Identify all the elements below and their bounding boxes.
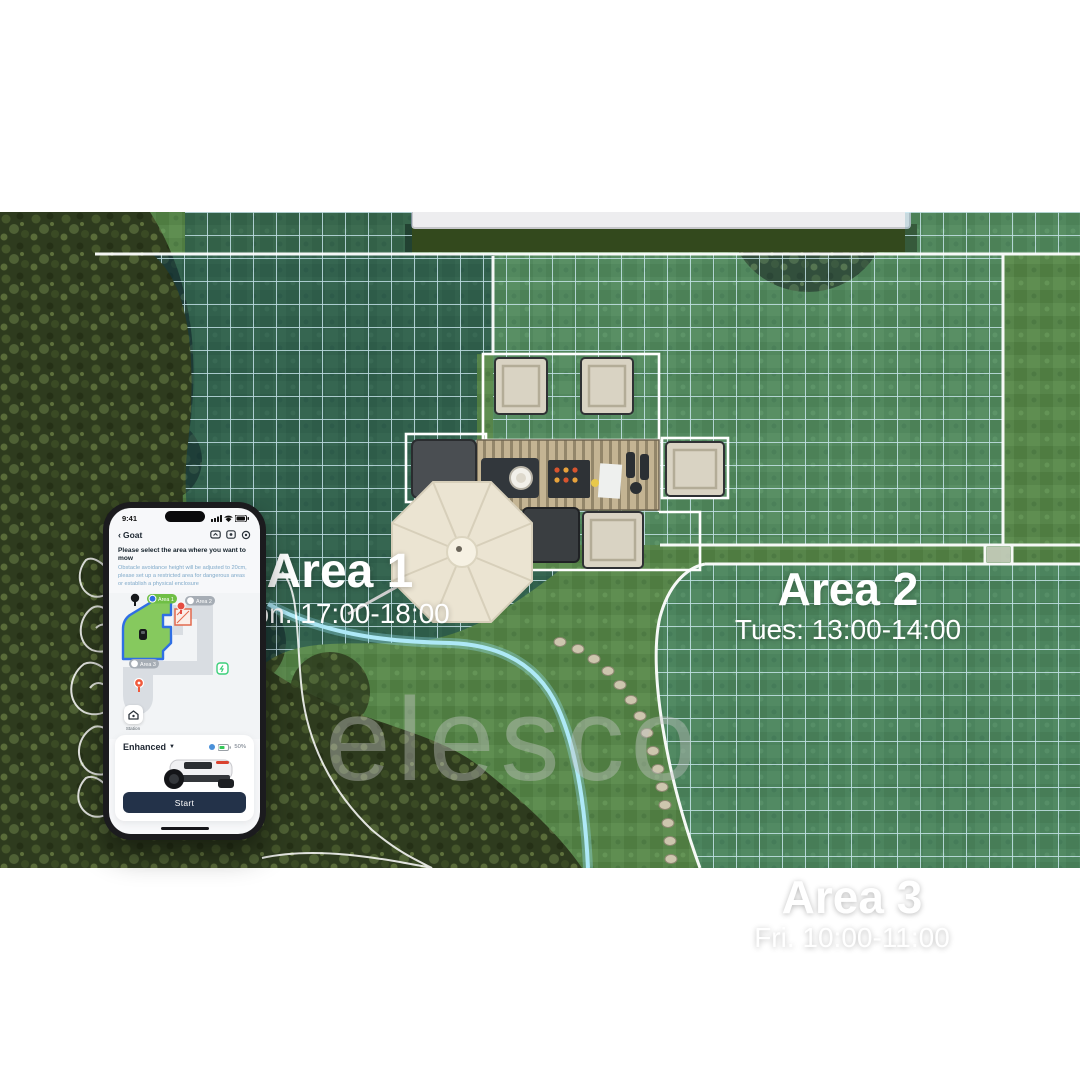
instruction-title: Please select the area where you want to… xyxy=(118,547,251,563)
area3-label: Area 3 Fri. 10:00-11:00 xyxy=(712,873,992,955)
back-chevron-icon: ‹ xyxy=(118,530,121,540)
robot-marker-icon xyxy=(139,629,147,640)
map-layers-icon[interactable] xyxy=(210,530,221,539)
app-screen: 9:41 ‹ Goat xyxy=(109,508,260,834)
station-button[interactable] xyxy=(124,705,143,724)
start-button[interactable]: Start xyxy=(123,792,246,813)
bluetooth-status-dot xyxy=(209,744,215,750)
svg-text:Area 2: Area 2 xyxy=(196,599,212,605)
station-label: Station xyxy=(116,726,150,731)
locate-target-icon[interactable] xyxy=(241,530,251,540)
charging-dock-icon xyxy=(217,663,228,674)
home-station-icon xyxy=(128,710,139,720)
area2-title: Area 2 xyxy=(708,565,988,613)
area2-schedule: Tues: 13:00-14:00 xyxy=(708,613,988,647)
page-title: Goat xyxy=(123,530,142,540)
watermark: elesco xyxy=(325,672,702,808)
home-indicator[interactable] xyxy=(161,827,209,831)
map-area1-zone xyxy=(123,601,171,659)
battery-percent: 50% xyxy=(234,744,246,750)
mode-selector[interactable]: Enhanced ▼ xyxy=(123,742,175,752)
dynamic-island xyxy=(165,511,205,522)
mode-label: Enhanced xyxy=(123,742,166,752)
clock: 9:41 xyxy=(122,514,137,523)
map-settings-icon[interactable] xyxy=(226,530,236,539)
nav-bar: ‹ Goat xyxy=(109,526,260,543)
battery-status: 50% xyxy=(209,744,246,751)
control-card: Enhanced ▼ 50% xyxy=(115,735,254,821)
area3-schedule: Fri. 10:00-11:00 xyxy=(712,921,992,955)
robot-battery-icon xyxy=(218,744,231,751)
back-button[interactable]: ‹ Goat xyxy=(118,530,142,540)
status-bar: 9:41 xyxy=(109,508,260,526)
map-area2-pill[interactable]: Area 2 xyxy=(185,596,215,606)
cellular-icon xyxy=(211,515,222,522)
instruction-subtitle: Obstacle avoidance height will be adjust… xyxy=(118,565,251,588)
instruction-block: Please select the area where you want to… xyxy=(109,543,260,593)
battery-icon xyxy=(235,515,249,522)
map-area1-pill[interactable]: Area 1 xyxy=(147,594,177,604)
marketing-image: Area 1 Mon. 17:00-18:00 Area 2 Tues: 13:… xyxy=(0,0,1080,1080)
lawn-map[interactable]: Area 1 Area 2 Area 3 xyxy=(109,593,260,739)
svg-text:Area 3: Area 3 xyxy=(140,662,156,668)
phone-mockup: 9:41 ‹ Goat xyxy=(103,502,266,840)
area3-title: Area 3 xyxy=(712,873,992,921)
svg-text:Area 1: Area 1 xyxy=(158,597,174,603)
area2-label: Area 2 Tues: 13:00-14:00 xyxy=(708,565,988,647)
map-area3-pill[interactable]: Area 3 xyxy=(129,659,159,669)
wifi-icon xyxy=(224,515,233,522)
position-pin-icon xyxy=(131,594,139,606)
chevron-down-icon: ▼ xyxy=(169,744,175,750)
mower-illustration xyxy=(150,753,242,789)
